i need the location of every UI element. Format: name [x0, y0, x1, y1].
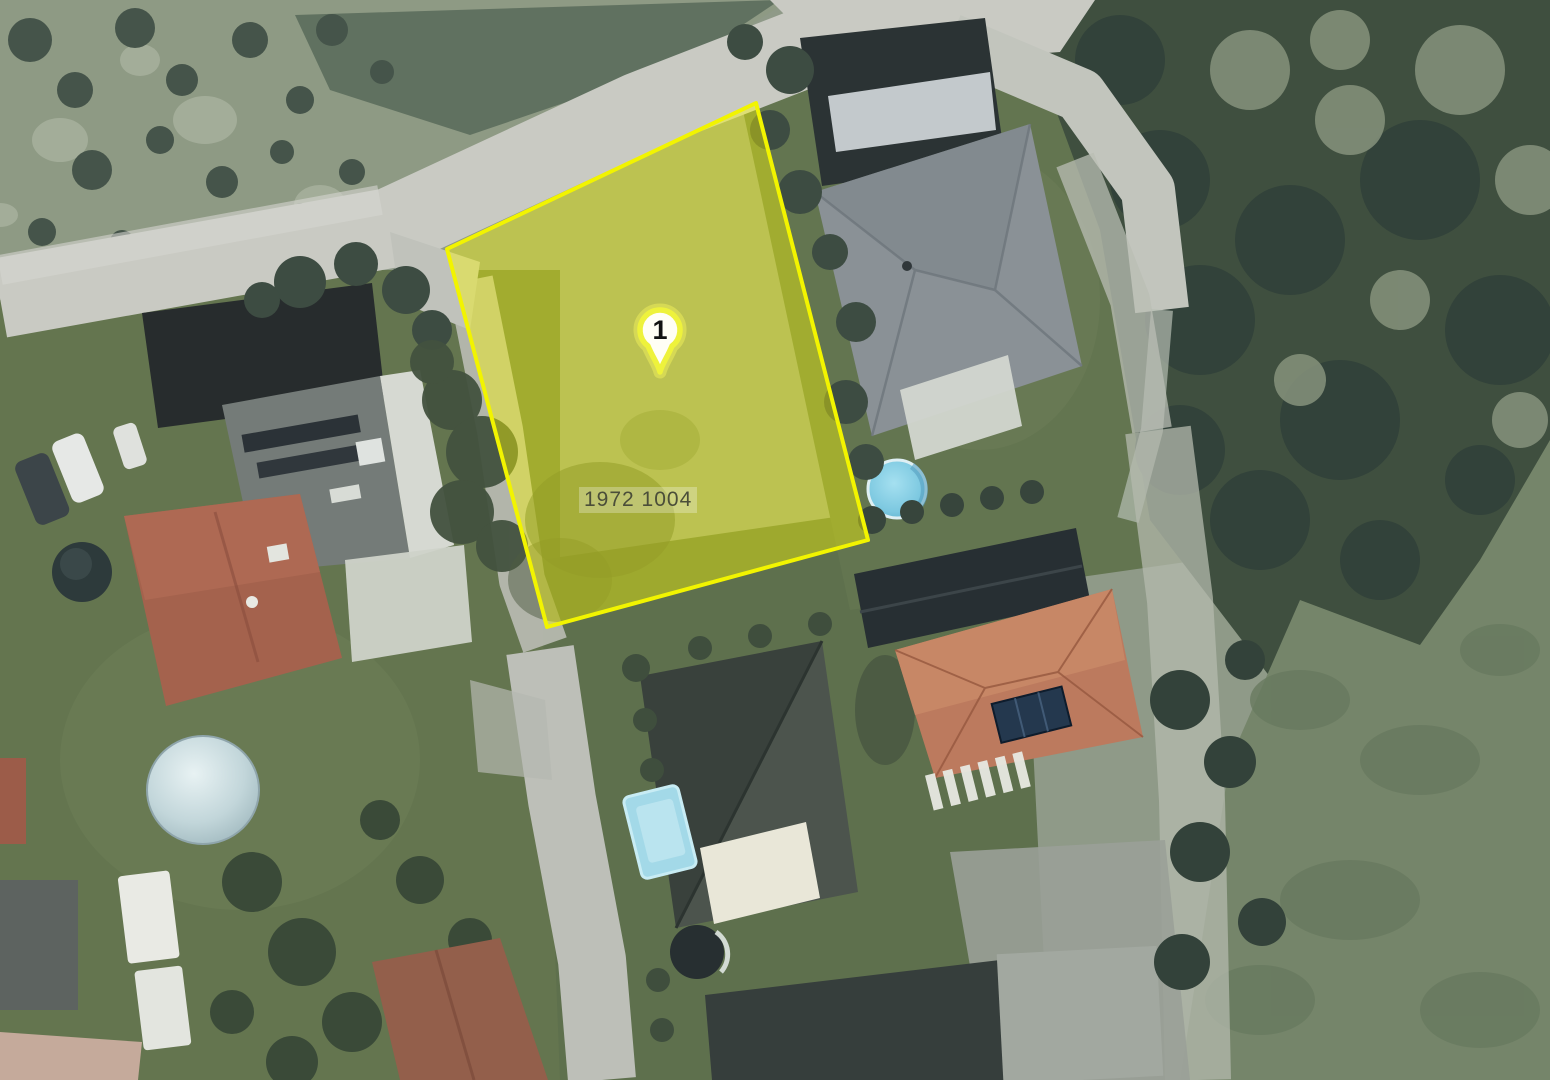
parcel-number-label: 1972 1004	[579, 487, 697, 513]
marker-pin-number: 1	[652, 315, 667, 345]
neighbor-gray-roof	[0, 880, 78, 1010]
orthophoto-canvas: 1	[0, 0, 1550, 1080]
white-terrace	[345, 545, 472, 662]
satellite-map[interactable]: 1 1972 1004	[0, 0, 1550, 1080]
pool-dome	[147, 736, 259, 844]
